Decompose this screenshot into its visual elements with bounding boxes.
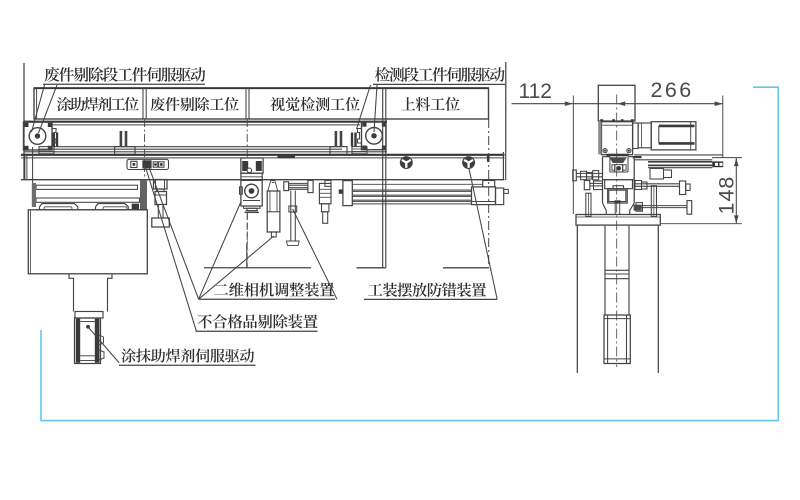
svg-text:266: 266	[651, 78, 694, 102]
svg-text:148: 148	[715, 176, 739, 215]
svg-text:112: 112	[519, 80, 552, 103]
